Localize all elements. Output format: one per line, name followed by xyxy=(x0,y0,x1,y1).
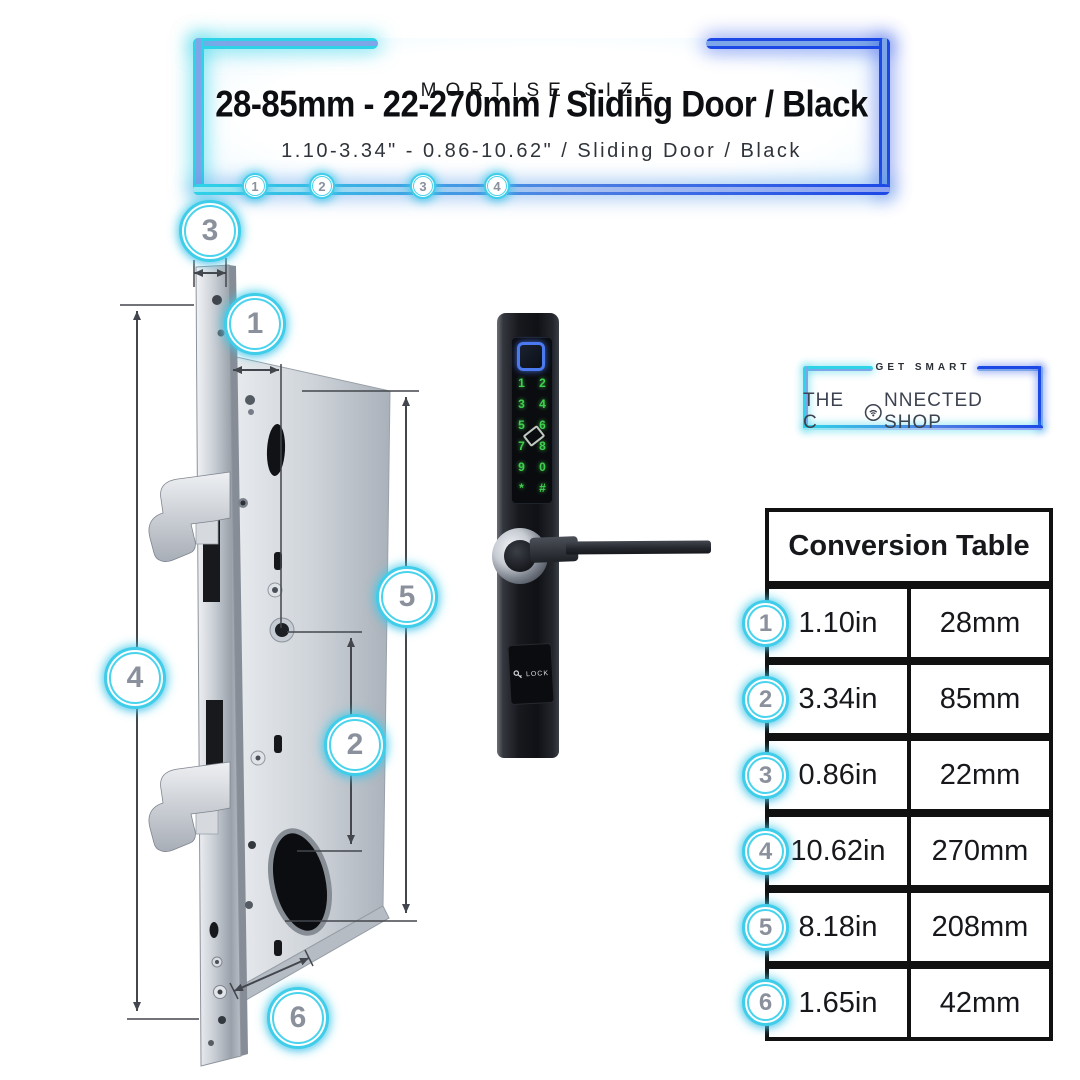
lock-indicator-panel: LOCK xyxy=(507,643,554,705)
banner-border xyxy=(706,38,890,49)
banner-header: MORTISE SIZE xyxy=(193,80,890,102)
table-marker-2: 2 xyxy=(742,676,789,723)
banner-border xyxy=(193,38,378,49)
product-subtitle: 1.10-3.34" - 0.86-10.62" / Sliding Door … xyxy=(193,140,890,163)
mm-cell: 270mm xyxy=(909,813,1053,889)
callout-3: 3 xyxy=(179,200,241,262)
banner-marker-2: 2 xyxy=(309,173,335,199)
table-row: 3.34in 85mm xyxy=(765,661,1053,737)
callout-6: 6 xyxy=(267,987,329,1049)
banner-marker-3: 3 xyxy=(410,173,436,199)
callout-5: 5 xyxy=(376,566,438,628)
callout-2: 2 xyxy=(324,714,386,776)
table-marker-4: 4 xyxy=(742,828,789,875)
table-row: 0.86in 22mm xyxy=(765,737,1053,813)
callout-4: 4 xyxy=(104,647,166,709)
brand-name: THE C NNECTED SHOP xyxy=(803,390,1043,434)
table-row: 1.65in 42mm xyxy=(765,965,1053,1041)
mm-cell: 85mm xyxy=(909,661,1053,737)
banner-marker-4: 4 xyxy=(484,173,510,199)
handle-lever xyxy=(566,540,711,554)
brand-tagline: GET SMART xyxy=(803,362,1043,373)
mm-cell: 208mm xyxy=(909,889,1053,965)
lock-label: LOCK xyxy=(526,670,549,678)
mm-cell: 28mm xyxy=(909,585,1053,661)
banner-marker-1: 1 xyxy=(242,173,268,199)
product-infographic: 3 1 5 4 2 6 12 34 56 78 90 *# LOCK xyxy=(0,0,1080,1080)
conversion-table-title: Conversion Table xyxy=(765,508,1053,585)
fingerprint-sensor-icon xyxy=(517,342,545,371)
banner-border xyxy=(193,184,890,195)
table-marker-5: 5 xyxy=(742,904,789,951)
table-marker-3: 3 xyxy=(742,752,789,799)
table-row: 8.18in 208mm xyxy=(765,889,1053,965)
table-marker-6: 6 xyxy=(742,979,789,1026)
wifi-circle-icon xyxy=(864,403,883,422)
brand-logo: GET SMART THE C NNECTED SHOP xyxy=(803,366,1043,430)
mortise-size-banner: MORTISE SIZE 28-85mm - 22-270mm / Slidin… xyxy=(193,38,890,195)
table-row: 10.62in 270mm xyxy=(765,813,1053,889)
key-icon xyxy=(513,669,524,680)
table-marker-1: 1 xyxy=(742,600,789,647)
callout-1: 1 xyxy=(224,293,286,355)
table-row: 1.10in 28mm xyxy=(765,585,1053,661)
conversion-table: Conversion Table 1.10in 28mm 3.34in 85mm… xyxy=(765,508,1053,1041)
mm-cell: 42mm xyxy=(909,965,1053,1041)
mm-cell: 22mm xyxy=(909,737,1053,813)
